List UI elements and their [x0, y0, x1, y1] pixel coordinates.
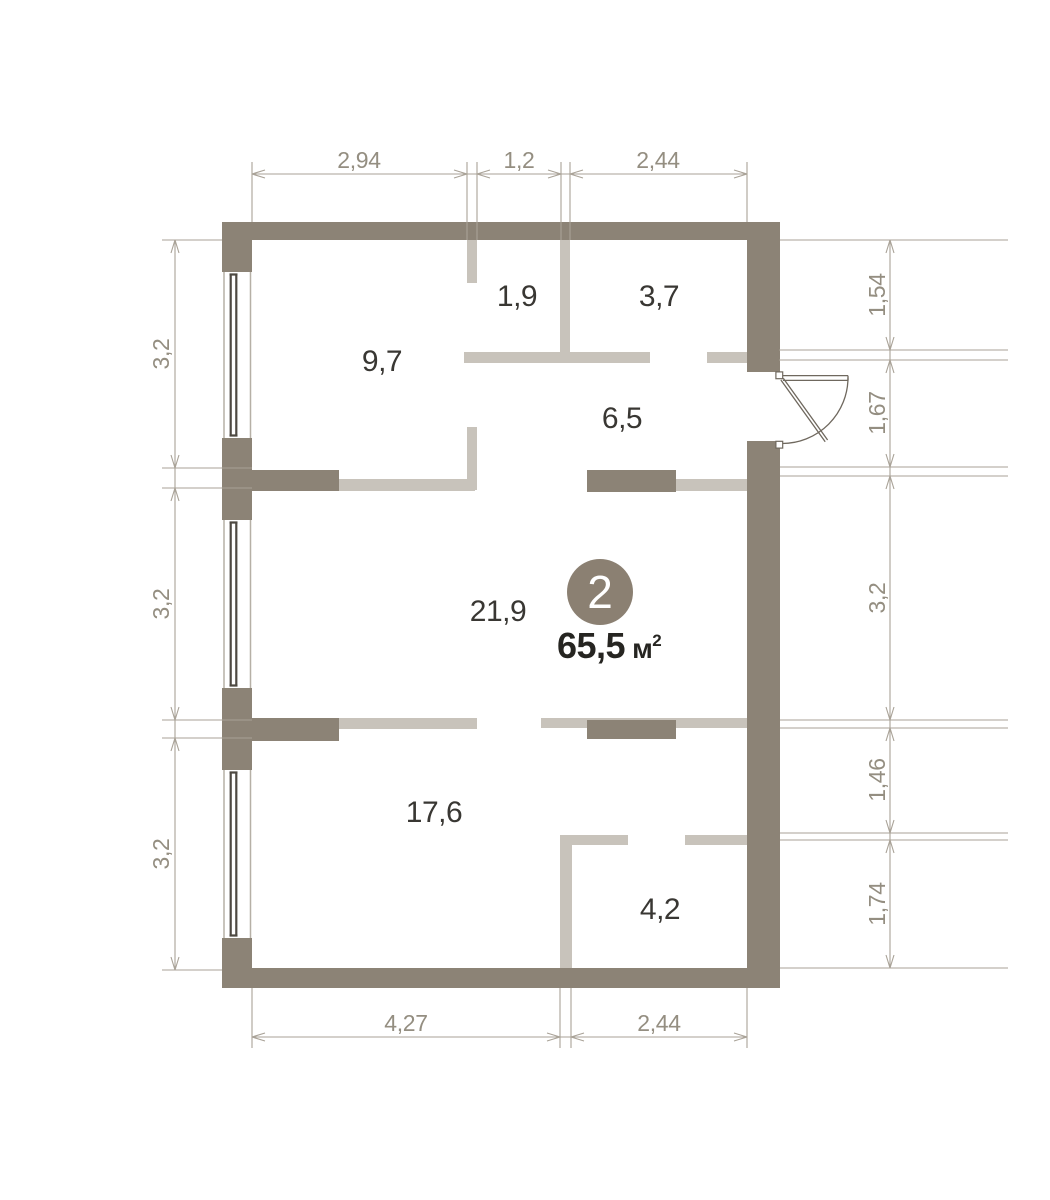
room-label-3-7: 3,7 [639, 280, 679, 313]
wall-left-pier-1 [222, 222, 252, 272]
wall-left-pier-2 [222, 438, 252, 520]
dim-top-3: 2,44 [636, 147, 680, 173]
room-label-1-9: 1,9 [497, 280, 537, 313]
door-closed-leaf [783, 376, 848, 381]
door-open-leaf [781, 378, 828, 441]
dim-right-5: 1,74 [864, 882, 890, 926]
total-area-superscript: 2 [652, 631, 661, 650]
dim-left-2: 3,2 [148, 588, 174, 619]
room-labels: 9,7 1,9 3,7 6,5 21,9 17,6 4,2 [362, 280, 680, 926]
room-label-17-6: 17,6 [406, 796, 462, 829]
entrance-door [776, 372, 848, 448]
wall-right-upper [747, 222, 780, 372]
partition-h-living-left [339, 718, 477, 729]
wall-stub-living-left [252, 718, 339, 741]
dim-left-1: 3,2 [148, 338, 174, 369]
bottom-dimension-chain: 4,27 2,44 [252, 988, 747, 1048]
room-label-4-2: 4,2 [640, 893, 680, 926]
window-2 [222, 520, 252, 688]
dim-left-3: 3,2 [148, 838, 174, 869]
wall-right-lower [747, 441, 780, 988]
partition-v-storage [560, 835, 572, 968]
partition-h-bath-right [707, 352, 747, 363]
wall-left-pier-3 [222, 688, 252, 770]
dim-right-2: 1,67 [864, 391, 890, 435]
door-swing-arc [782, 378, 848, 444]
door-hinge-bottom [776, 441, 783, 448]
partition-h-storage-left [560, 835, 628, 845]
dim-top-1: 2,94 [337, 147, 381, 173]
dim-right-3: 3,2 [864, 582, 890, 613]
door-hinge-top [776, 372, 783, 379]
floor-plan: 2,94 1,2 2,44 4,27 2,44 3,2 3,2 3,2 1,54… [0, 0, 1050, 1200]
wall-bottom [222, 968, 780, 988]
right-dimension-chain: 1,54 1,67 3,2 1,46 1,74 [779, 240, 1008, 968]
wall-left-pier-4 [222, 937, 252, 988]
total-area: 65,5м2 [557, 625, 661, 666]
total-area-unit: м [632, 633, 652, 664]
windows [222, 272, 252, 938]
unit-badge: 2 [567, 559, 633, 625]
partition-h-storage-right [685, 835, 747, 845]
partition-v-closet-bath [560, 240, 570, 363]
dim-right-1: 1,54 [864, 273, 890, 317]
dim-top-2: 1,2 [503, 147, 534, 173]
partition-h-hall-right [676, 479, 747, 491]
floor-plan-page: 2,94 1,2 2,44 4,27 2,44 3,2 3,2 3,2 1,54… [0, 0, 1050, 1200]
window-3 [222, 770, 252, 938]
unit-number: 2 [587, 566, 613, 618]
room-label-6-5: 6,5 [602, 402, 642, 435]
dim-right-4: 1,46 [864, 758, 890, 802]
room-label-21-9: 21,9 [470, 595, 526, 628]
wall-top [222, 222, 780, 240]
room-label-9-7: 9,7 [362, 345, 402, 378]
wall-stub-living-mid-overlay [587, 720, 676, 739]
dim-bottom-2: 2,44 [637, 1010, 681, 1036]
partition-h-bath-left [464, 352, 650, 363]
partition-h-hall-left [339, 479, 475, 491]
dim-bottom-1: 4,27 [384, 1010, 428, 1036]
window-1 [222, 272, 252, 438]
wall-stub-hall-left [252, 470, 339, 491]
right-extension-lines [779, 240, 1008, 968]
partition-v-closet-upper [467, 240, 477, 283]
wall-stub-hall-mid [587, 470, 676, 492]
total-area-value: 65,5 [557, 625, 626, 666]
